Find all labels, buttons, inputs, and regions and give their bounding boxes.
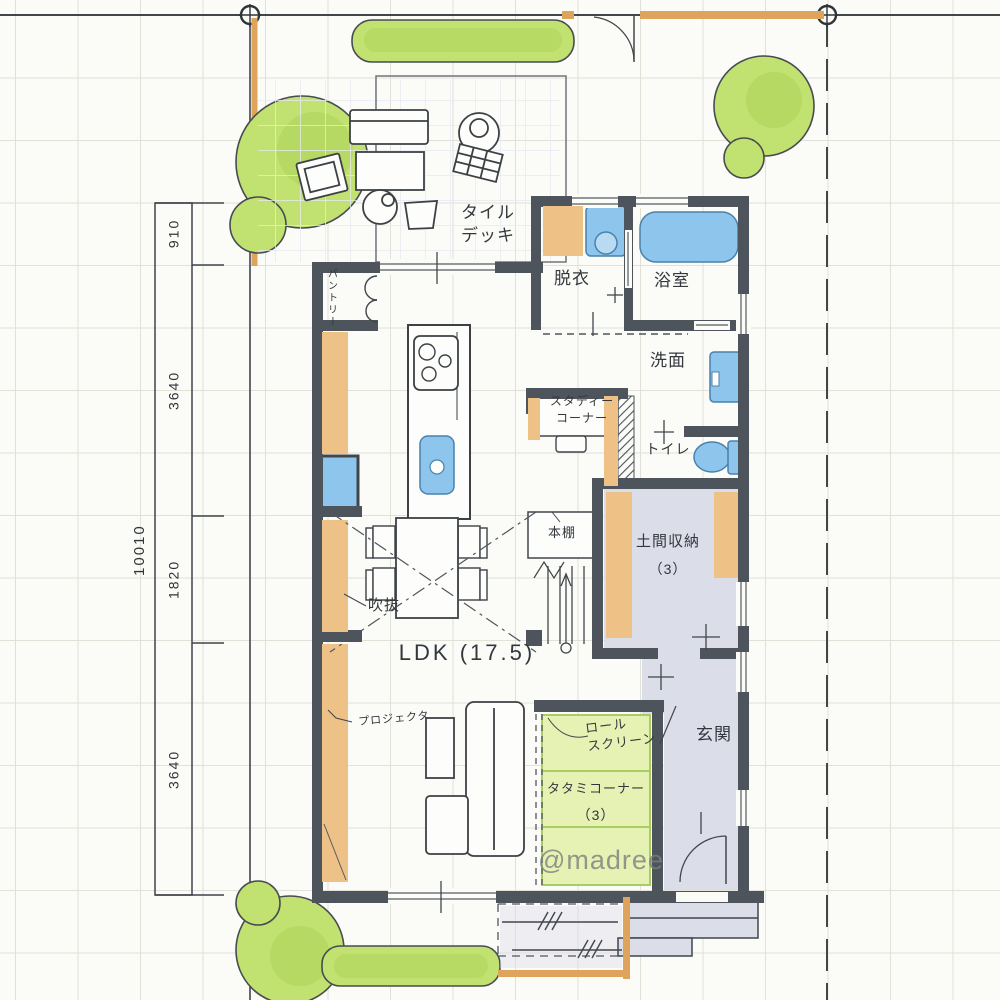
outdoor-table (356, 152, 424, 190)
label-pantry: パントリー (324, 268, 338, 328)
label-doma-size: （3） (608, 560, 728, 579)
washing-machine (586, 206, 626, 256)
gate-door (594, 16, 634, 62)
dim-3640-upper: 3640 (165, 350, 184, 430)
label-tatami-corner: タタミコーナー (542, 780, 650, 798)
dim-1820: 1820 (165, 539, 184, 619)
floor-plan-canvas: タイル デッキ パントリー 脱衣 浴室 洗面 スタディー コーナー トイレ 土間… (0, 0, 1000, 1000)
label-ldk: LDK (17.5) (382, 638, 552, 668)
toilet-fixture (694, 441, 742, 474)
living-furniture (426, 702, 524, 856)
label-tatami-size: （3） (542, 806, 650, 825)
hedge-top (352, 20, 574, 62)
kitchen-cupboard (322, 332, 348, 454)
porch-steps (618, 898, 758, 956)
floor-plan-drawing (0, 0, 1000, 1000)
outdoor-sofa (350, 110, 428, 144)
label-doma-storage: 土間収納 (608, 532, 728, 552)
changing-room-locker (543, 206, 583, 256)
watermark: @madree (538, 842, 688, 878)
kitchen-sink (420, 436, 454, 494)
hedge-bottom (322, 946, 500, 986)
dim-total-10010: 10010 (130, 508, 150, 592)
label-entrance: 玄関 (682, 724, 746, 747)
label-study-corner: スタディー コーナー (538, 393, 626, 428)
label-void: 吹抜 (352, 596, 416, 616)
coffee-table (426, 718, 454, 778)
label-bathroom: 浴室 (636, 270, 708, 293)
label-washroom: 洗面 (630, 350, 706, 373)
tv-board-wall (322, 644, 348, 882)
label-tile-deck: タイル デッキ (448, 202, 528, 248)
label-changing-room: 脱衣 (540, 268, 604, 291)
label-toilet: トイレ (638, 440, 698, 459)
kitchen-counter (322, 520, 348, 632)
dim-3640-lower: 3640 (165, 729, 184, 809)
refrigerator (320, 456, 358, 508)
ottoman (426, 796, 468, 854)
kitchen (408, 325, 470, 519)
sofa (466, 702, 524, 856)
stove (414, 336, 458, 390)
stool (405, 201, 437, 229)
bathtub (640, 212, 738, 262)
dim-910: 910 (165, 193, 184, 273)
approach-floor (500, 906, 622, 968)
tree-top-right (714, 56, 814, 178)
label-bookshelf: 本棚 (532, 524, 592, 542)
